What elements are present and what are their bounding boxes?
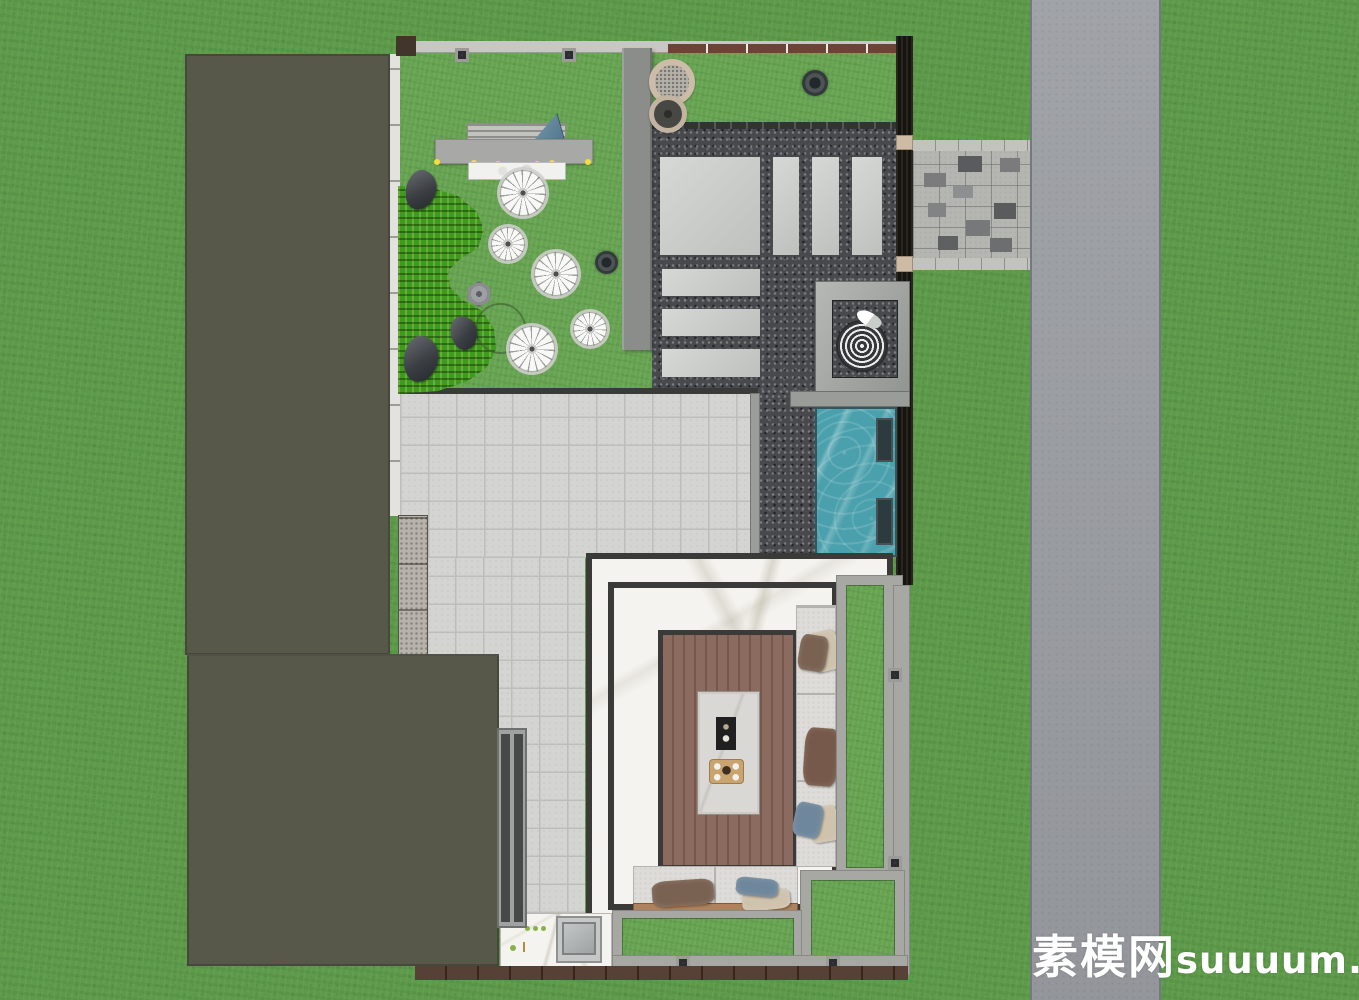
patio-edge-wall bbox=[400, 388, 758, 394]
corner-post bbox=[396, 36, 416, 56]
stepping-paver bbox=[662, 309, 760, 336]
tile-patio bbox=[400, 393, 758, 558]
flower-plant bbox=[573, 312, 607, 346]
flower-plant bbox=[509, 326, 555, 372]
stepping-paver bbox=[812, 157, 839, 255]
beam-post bbox=[888, 856, 902, 870]
stepping-paver bbox=[662, 269, 760, 296]
gate-pillar bbox=[896, 256, 913, 272]
path-dark-brick bbox=[958, 156, 982, 172]
site-plan: 素模网suuuum.com bbox=[0, 0, 1359, 1000]
string-light bbox=[585, 159, 591, 165]
gate-pillar bbox=[896, 135, 913, 150]
flower-plant bbox=[534, 252, 578, 296]
fence-post bbox=[562, 48, 576, 62]
planting-patch-corner bbox=[811, 880, 895, 956]
path-curb bbox=[913, 258, 1030, 270]
utensil bbox=[523, 942, 525, 952]
path-dark-brick bbox=[924, 173, 946, 187]
left-building-roof bbox=[185, 54, 390, 655]
flower-plant bbox=[500, 170, 546, 216]
pergola-canopy bbox=[435, 139, 593, 164]
stove-knob bbox=[533, 926, 538, 931]
flower-plant bbox=[491, 227, 525, 261]
bottom-wood-wall bbox=[415, 966, 908, 980]
stepping-paver bbox=[773, 157, 799, 255]
pool-bench bbox=[876, 418, 893, 462]
watermark-latin: suuuum.com bbox=[1176, 939, 1359, 982]
string-light bbox=[434, 159, 440, 165]
pillow bbox=[802, 727, 840, 787]
watermark: 素模网suuuum.com bbox=[1032, 921, 1359, 973]
privacy-wall-gray bbox=[622, 48, 652, 350]
pool-deck bbox=[790, 391, 910, 407]
path-dark-brick bbox=[990, 238, 1012, 252]
top-wood-screen bbox=[668, 44, 898, 53]
planter-pot bbox=[649, 95, 687, 133]
stepping-paver bbox=[660, 157, 760, 255]
path-dark-brick bbox=[938, 236, 958, 250]
stepping-paver bbox=[852, 157, 882, 255]
planting-strip-bottom bbox=[622, 918, 794, 956]
coffee-table-island bbox=[698, 692, 759, 814]
shrub-pot bbox=[802, 70, 828, 96]
gravel-brick-border bbox=[652, 122, 910, 129]
stepping-paver bbox=[662, 349, 760, 377]
path-dark-brick bbox=[994, 203, 1016, 219]
patio-gravel-curb bbox=[750, 393, 760, 558]
pillow bbox=[651, 878, 715, 908]
door-panel bbox=[514, 734, 523, 922]
stove-knob bbox=[510, 945, 516, 951]
watermark-chinese: 素模网 bbox=[1032, 921, 1176, 987]
tea-tray bbox=[710, 760, 743, 783]
path-dark-brick bbox=[953, 186, 973, 198]
fireplace bbox=[716, 717, 736, 750]
shrub-pot bbox=[595, 251, 618, 274]
stove-knob bbox=[541, 926, 546, 931]
fence-post bbox=[455, 48, 469, 62]
gravel-strip bbox=[758, 393, 818, 558]
planting-strip-right bbox=[846, 585, 884, 868]
path-curb bbox=[913, 140, 1030, 151]
pool-bench bbox=[876, 498, 893, 545]
fire-pit-spiral bbox=[838, 322, 886, 370]
pebble-column bbox=[399, 516, 427, 655]
kitchen-sink-basin bbox=[562, 922, 596, 955]
road bbox=[1030, 0, 1161, 1000]
lower-building-roof bbox=[187, 654, 499, 966]
path-dark-brick bbox=[966, 220, 990, 236]
beam-post bbox=[888, 668, 902, 682]
path-dark-brick bbox=[928, 203, 946, 217]
door-panel bbox=[501, 734, 510, 922]
path-dark-brick bbox=[1000, 158, 1020, 172]
